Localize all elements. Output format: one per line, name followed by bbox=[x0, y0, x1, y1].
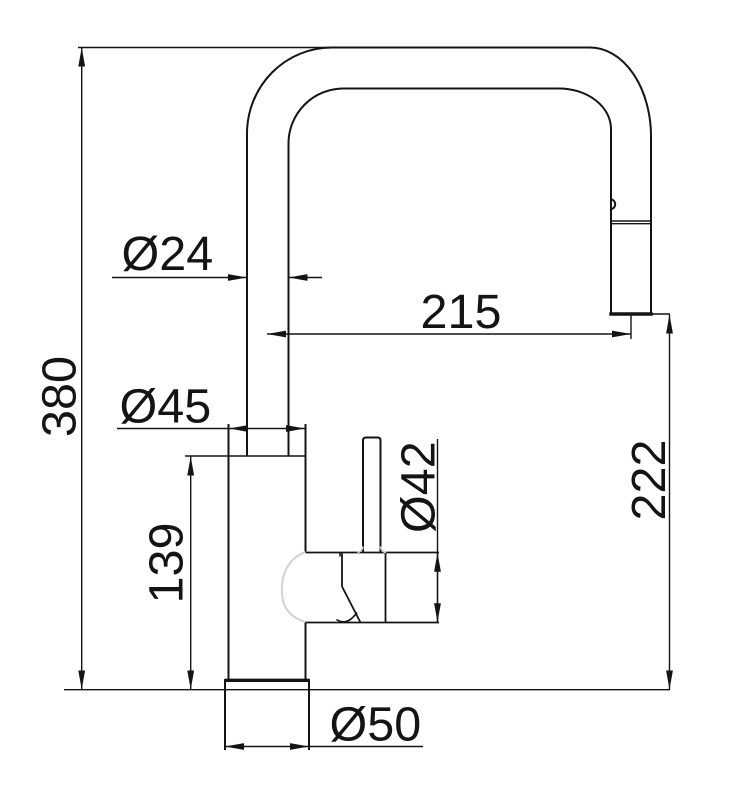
svg-text:139: 139 bbox=[140, 523, 194, 604]
svg-text:380: 380 bbox=[33, 356, 87, 437]
svg-text:222: 222 bbox=[622, 440, 676, 521]
svg-text:215: 215 bbox=[421, 285, 502, 339]
svg-text:Ø24: Ø24 bbox=[122, 227, 214, 281]
svg-text:Ø50: Ø50 bbox=[330, 698, 422, 752]
svg-text:Ø42: Ø42 bbox=[392, 441, 446, 533]
svg-text:Ø45: Ø45 bbox=[120, 380, 212, 434]
